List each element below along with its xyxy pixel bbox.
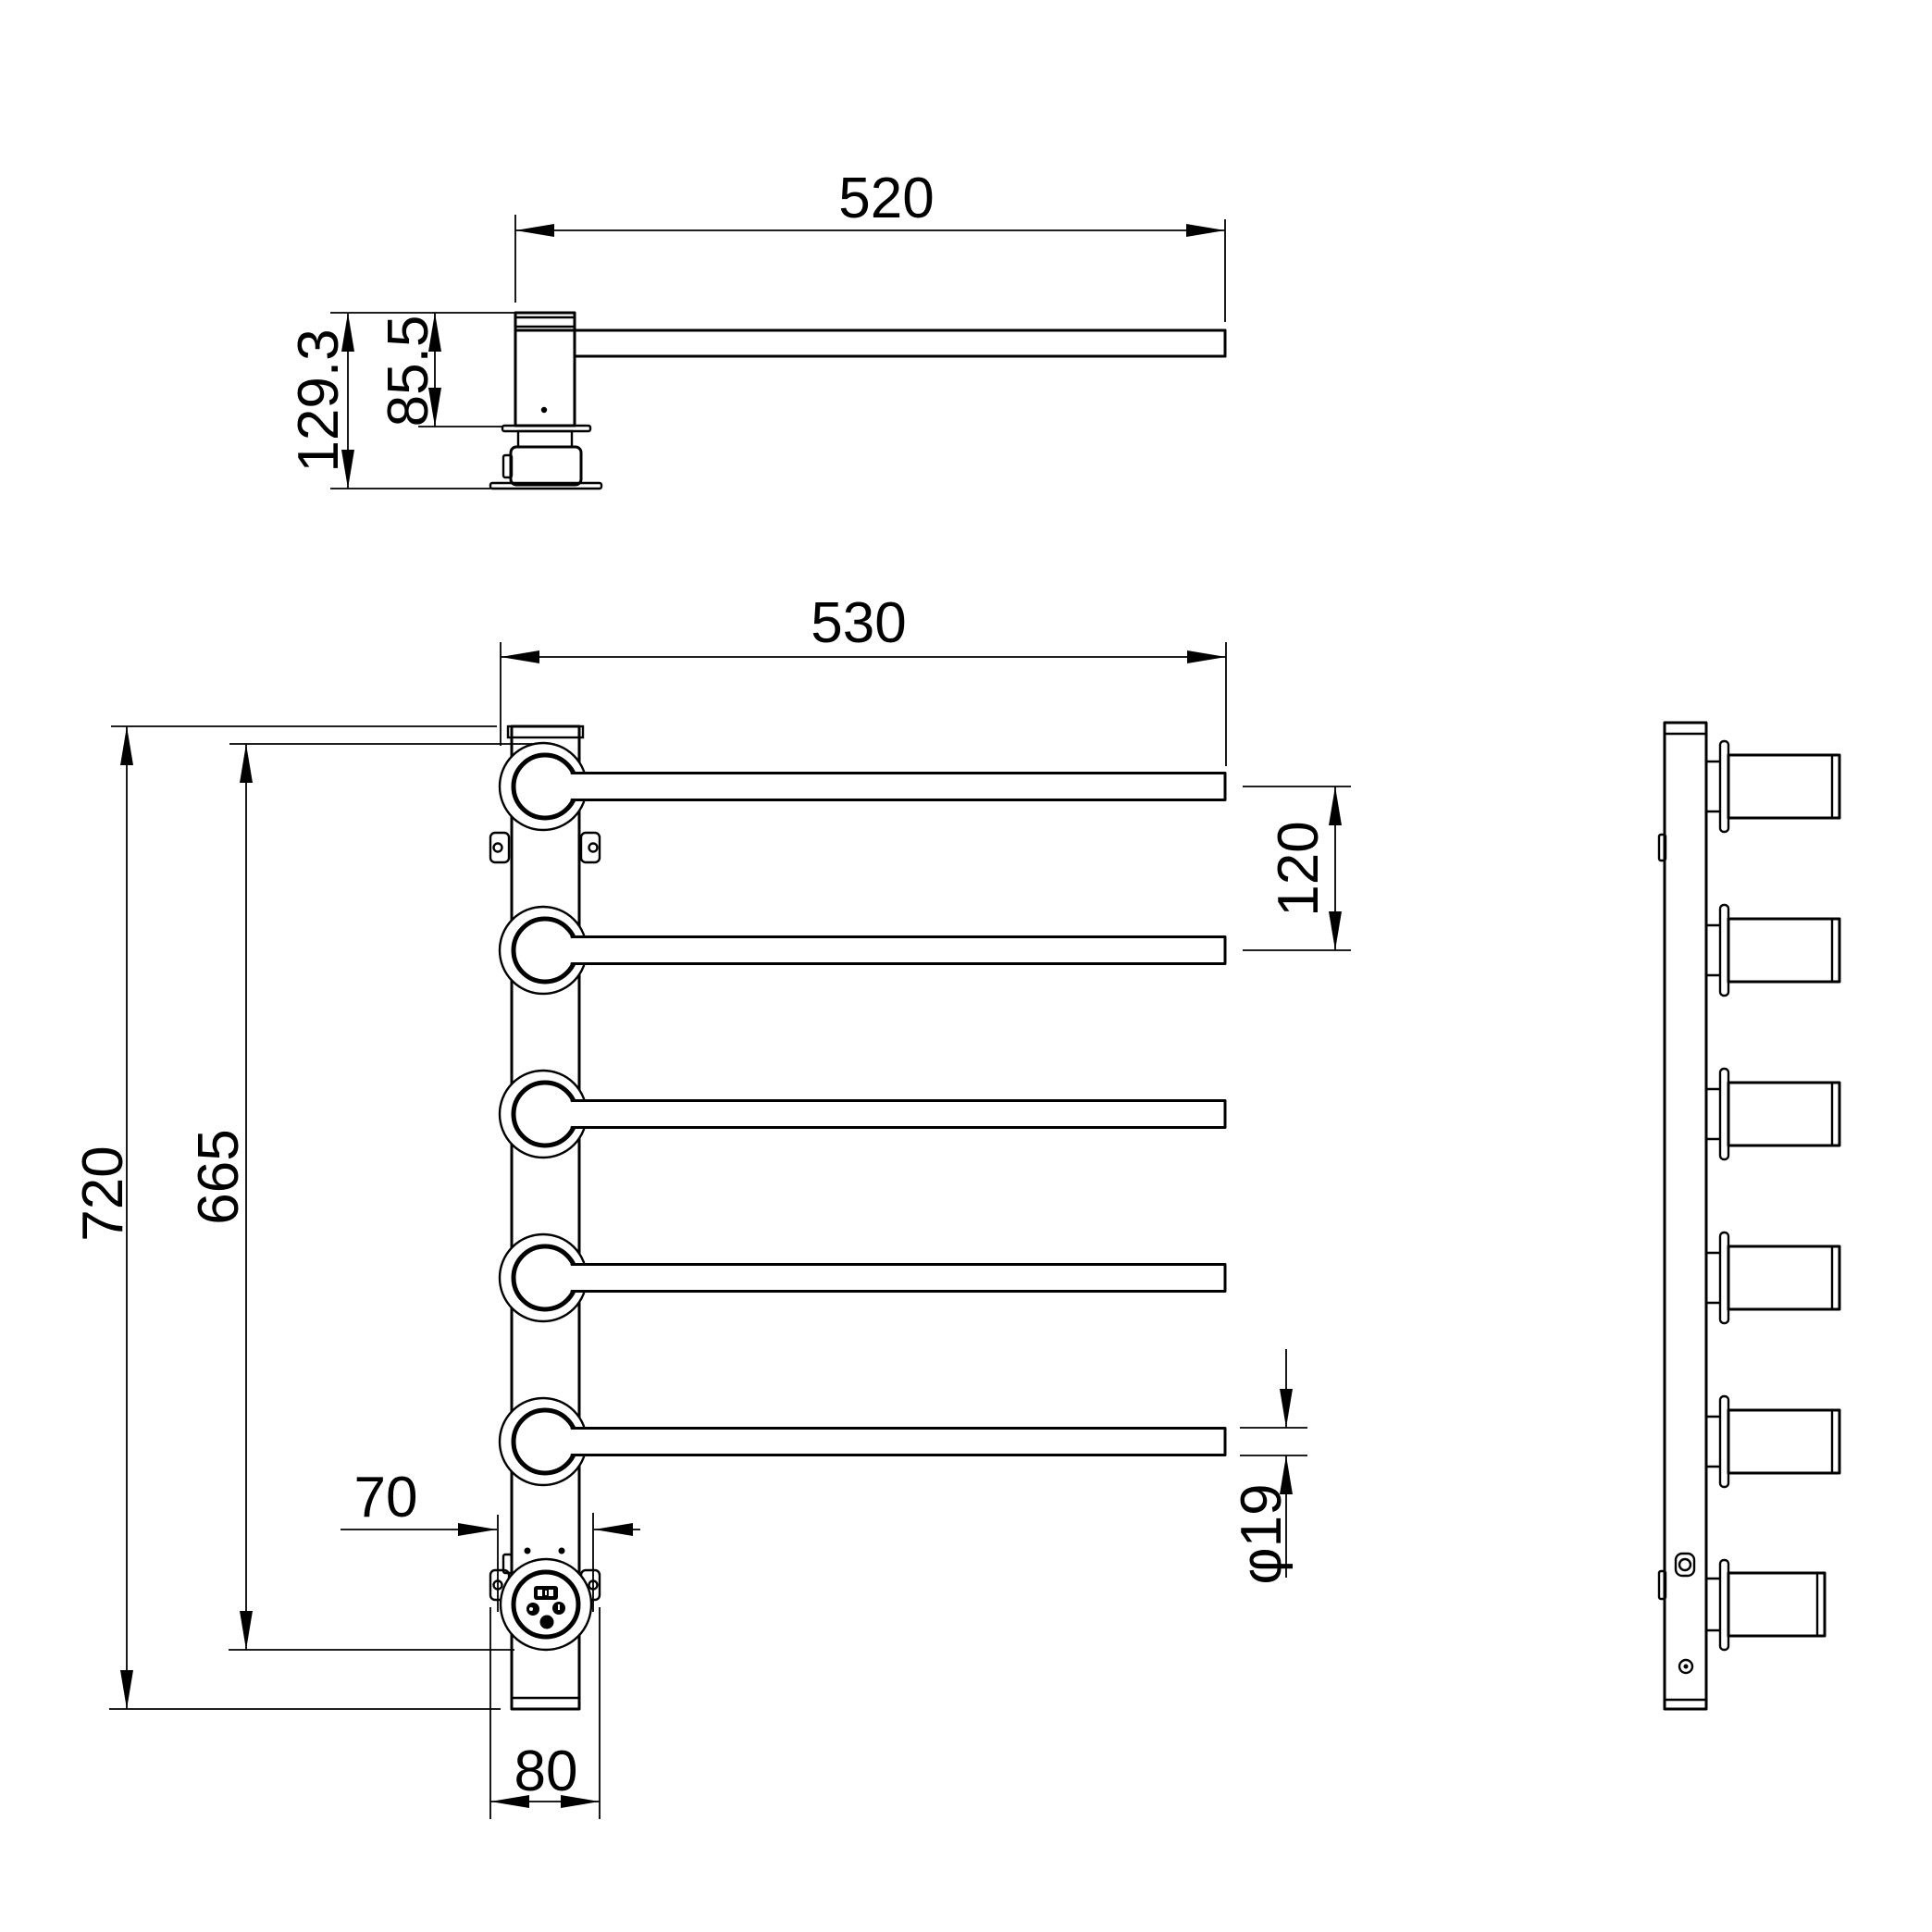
dim-80-label: 80 [514, 1740, 578, 1803]
top-view-set-screw-dot [541, 407, 547, 413]
display-segment [549, 1590, 553, 1596]
dim-530-label: 530 [811, 591, 906, 655]
arm-assembly-3 [500, 1071, 1225, 1158]
dim-520-label: 520 [838, 167, 934, 230]
arm-cylinder [1728, 1246, 1839, 1309]
bar-ring-inner-1 [514, 755, 576, 818]
arm-cylinder [1728, 755, 1839, 818]
top-view-housing [511, 447, 581, 485]
arm-assembly-4 [500, 1234, 1225, 1321]
side-post [1665, 723, 1706, 1709]
arm-assembly-5 [500, 1398, 1225, 1485]
dimension-phi19: φ19 [1230, 1349, 1307, 1585]
side-arm-2 [1706, 905, 1839, 996]
arrow-right [1186, 224, 1225, 237]
dim-665-label: 665 [187, 1129, 251, 1224]
bar-ring-inner-5 [514, 1410, 576, 1473]
front-post-top-cap [508, 726, 583, 737]
screw-hole [494, 844, 502, 852]
front-view: 530 720 665 120 [71, 591, 1351, 1819]
arrow-left [515, 224, 554, 237]
dimension-85-5: 85.5 [377, 313, 502, 427]
towel-bar-5 [572, 1429, 1225, 1455]
side-upper-ear-tab [1659, 835, 1666, 861]
bar-ring-inner-4 [514, 1246, 576, 1309]
dim-70-label: 70 [354, 1466, 418, 1529]
front-screw-dot-right [559, 1548, 565, 1554]
dimension-120: 120 [1243, 786, 1351, 950]
side-arm-5 [1706, 1396, 1839, 1487]
display-segment [538, 1590, 542, 1596]
side-arm-3 [1706, 1069, 1839, 1159]
technical-drawing-page: 520 129.3 85.5 [0, 0, 1932, 1932]
bar-ring-inner-2 [514, 919, 576, 982]
upper-mounting-bracket [490, 833, 600, 862]
dimension-530: 530 [501, 591, 1226, 766]
dim-85-5-label: 85.5 [377, 316, 440, 427]
arm-assembly-2 [500, 907, 1225, 994]
pin-detail [558, 1604, 560, 1610]
side-arm-1 [1706, 741, 1839, 832]
towel-bar-2 [572, 937, 1225, 964]
side-socket-assembly [1706, 1560, 1825, 1650]
socket-pin-bottom [540, 1616, 554, 1629]
side-view [1659, 723, 1839, 1709]
arm-cylinder [1728, 1410, 1839, 1473]
top-view: 520 129.3 85.5 [287, 167, 1225, 489]
dim-720-label: 720 [71, 1146, 135, 1241]
top-view-neck [518, 431, 572, 447]
arm-cylinder [1728, 919, 1839, 982]
towel-bar-4 [572, 1265, 1225, 1292]
bar-ring-inner-3 [514, 1083, 576, 1146]
dim-120-label: 120 [1267, 821, 1331, 916]
side-screw-boss [1676, 1554, 1694, 1576]
towel-bar-3 [572, 1101, 1225, 1128]
dimension-520: 520 [515, 167, 1225, 322]
display-segment [545, 1591, 547, 1595]
side-lower-ear-tab [1659, 1571, 1666, 1599]
power-socket [501, 1559, 591, 1650]
front-screw-dot-left [525, 1548, 531, 1554]
arm-cylinder [1728, 1083, 1839, 1146]
side-screw [1679, 1660, 1692, 1673]
towel-warmer-drawing: 520 129.3 85.5 [0, 0, 1932, 1932]
towel-bar-1 [572, 774, 1225, 800]
socket-cylinder [1728, 1573, 1825, 1636]
pin-detail [529, 1607, 533, 1611]
dim-129-3-label: 129.3 [287, 328, 351, 472]
screw-hole [589, 844, 598, 852]
side-arm-4 [1706, 1232, 1839, 1323]
dimension-720: 720 [71, 726, 501, 1709]
arm-assembly-1 [500, 743, 1225, 830]
dim-phi19-label: φ19 [1230, 1483, 1294, 1584]
